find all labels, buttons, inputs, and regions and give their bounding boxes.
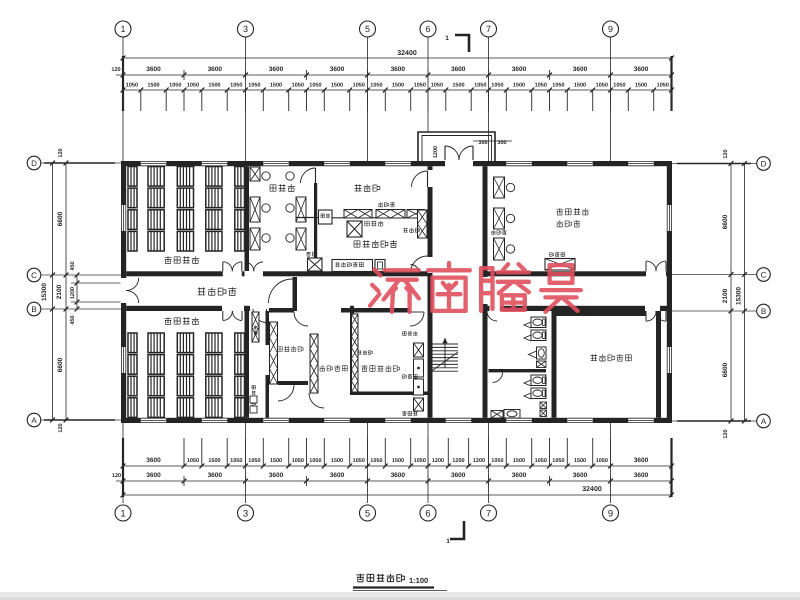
svg-text:1050: 1050	[657, 83, 669, 89]
svg-text:1200: 1200	[433, 146, 439, 158]
svg-text:6: 6	[425, 508, 430, 519]
svg-text:1200: 1200	[70, 287, 76, 299]
svg-text:3600: 3600	[391, 472, 406, 479]
svg-text:1050: 1050	[187, 458, 199, 464]
svg-text:1050: 1050	[230, 458, 242, 464]
svg-text:3600: 3600	[330, 472, 345, 479]
svg-text:9: 9	[608, 24, 613, 34]
svg-text:3600: 3600	[634, 472, 649, 479]
svg-text:1500: 1500	[513, 83, 525, 89]
svg-text:1050: 1050	[248, 83, 260, 89]
svg-text:3600: 3600	[634, 66, 649, 73]
svg-text:2100: 2100	[56, 284, 63, 299]
svg-text:A: A	[761, 417, 767, 426]
svg-text:1050: 1050	[187, 83, 199, 89]
svg-text:6600: 6600	[57, 357, 64, 372]
svg-text:7: 7	[486, 508, 491, 519]
svg-text:1050: 1050	[474, 83, 486, 89]
svg-text:1050: 1050	[248, 458, 260, 464]
svg-text:1500: 1500	[270, 458, 282, 464]
svg-text:1500: 1500	[392, 458, 404, 464]
svg-text:2100: 2100	[722, 288, 729, 303]
svg-text:1050: 1050	[370, 458, 382, 464]
svg-text:1500: 1500	[208, 83, 220, 89]
svg-text:6600: 6600	[722, 362, 729, 377]
svg-text:1050: 1050	[126, 83, 138, 89]
svg-text:6600: 6600	[57, 211, 64, 226]
svg-text:5: 5	[365, 508, 370, 519]
svg-text:1500: 1500	[331, 458, 343, 464]
svg-text:1050: 1050	[292, 458, 304, 464]
svg-text:1050: 1050	[613, 83, 625, 89]
svg-text:1: 1	[446, 538, 450, 545]
svg-text:1500: 1500	[513, 458, 525, 464]
svg-text:1050: 1050	[370, 83, 382, 89]
svg-text:1050: 1050	[491, 83, 503, 89]
svg-text:B: B	[31, 305, 36, 314]
svg-text:1500: 1500	[331, 83, 343, 89]
svg-text:3600: 3600	[146, 472, 161, 479]
svg-text:D: D	[31, 159, 37, 168]
svg-text:3600: 3600	[512, 66, 527, 73]
svg-text:120: 120	[723, 429, 729, 438]
svg-text:1050: 1050	[309, 83, 321, 89]
svg-text:6: 6	[425, 24, 430, 34]
svg-text:3600: 3600	[330, 66, 345, 73]
svg-text:1500: 1500	[147, 83, 159, 89]
svg-text:1200: 1200	[473, 458, 485, 464]
svg-text:1050: 1050	[535, 458, 547, 464]
svg-text:1: 1	[120, 508, 125, 519]
svg-text:15300: 15300	[736, 287, 743, 305]
svg-text:450: 450	[70, 261, 76, 270]
svg-text:D: D	[761, 159, 767, 168]
svg-text:1050: 1050	[292, 83, 304, 89]
svg-text:7: 7	[486, 24, 491, 34]
svg-text:1050: 1050	[230, 83, 242, 89]
svg-text:1050: 1050	[552, 458, 564, 464]
svg-text:6600: 6600	[722, 214, 729, 229]
svg-text:3600: 3600	[269, 66, 284, 73]
svg-text:15300: 15300	[41, 283, 48, 301]
svg-text:B: B	[761, 307, 766, 316]
svg-text:3600: 3600	[512, 472, 527, 479]
svg-text:120: 120	[111, 67, 120, 73]
svg-text:3600: 3600	[451, 66, 466, 73]
svg-text:120: 120	[58, 148, 64, 157]
svg-text:3600: 3600	[573, 66, 588, 73]
svg-text:120: 120	[58, 423, 64, 432]
svg-text:1200: 1200	[432, 458, 444, 464]
svg-text:1050: 1050	[535, 83, 547, 89]
svg-text:1500: 1500	[270, 83, 282, 89]
svg-text:1: 1	[120, 24, 125, 34]
svg-text:C: C	[31, 271, 37, 280]
svg-text:1050: 1050	[353, 83, 365, 89]
svg-text:1050: 1050	[414, 458, 426, 464]
svg-text:9: 9	[608, 508, 613, 519]
svg-text:3600: 3600	[634, 457, 649, 464]
svg-text:1050: 1050	[309, 458, 321, 464]
svg-text:1500: 1500	[208, 458, 220, 464]
svg-text:3600: 3600	[146, 66, 161, 73]
svg-text:A: A	[31, 416, 37, 425]
svg-text:450: 450	[70, 315, 76, 324]
svg-text:120: 120	[723, 149, 729, 158]
svg-text:1500: 1500	[635, 83, 647, 89]
svg-text:1050: 1050	[414, 83, 426, 89]
svg-text:1050: 1050	[169, 83, 181, 89]
svg-text:3600: 3600	[391, 66, 406, 73]
svg-text:1500: 1500	[452, 83, 464, 89]
svg-text:32400: 32400	[582, 486, 602, 493]
svg-text:1050: 1050	[431, 83, 443, 89]
svg-text:3600: 3600	[451, 472, 466, 479]
svg-text:1050: 1050	[353, 458, 365, 464]
svg-text:1500: 1500	[574, 83, 586, 89]
svg-text:32400: 32400	[397, 50, 417, 57]
svg-text:3: 3	[243, 508, 248, 519]
svg-text:1500: 1500	[392, 83, 404, 89]
svg-text:3600: 3600	[146, 457, 161, 464]
svg-text:3600: 3600	[573, 472, 588, 479]
svg-text:120: 120	[112, 473, 121, 479]
svg-text:1050: 1050	[596, 83, 608, 89]
svg-text:5: 5	[365, 24, 370, 34]
svg-text:C: C	[761, 270, 767, 279]
svg-text:1050: 1050	[596, 458, 608, 464]
svg-text:1500: 1500	[574, 458, 586, 464]
svg-text:3600: 3600	[208, 66, 223, 73]
svg-text:3600: 3600	[208, 472, 223, 479]
svg-text:1:100: 1:100	[409, 576, 428, 585]
svg-text:1: 1	[445, 35, 449, 42]
svg-text:3: 3	[243, 24, 248, 34]
svg-text:1050: 1050	[552, 83, 564, 89]
svg-text:1200: 1200	[452, 458, 464, 464]
svg-text:3600: 3600	[269, 472, 284, 479]
svg-text:1050: 1050	[491, 458, 503, 464]
